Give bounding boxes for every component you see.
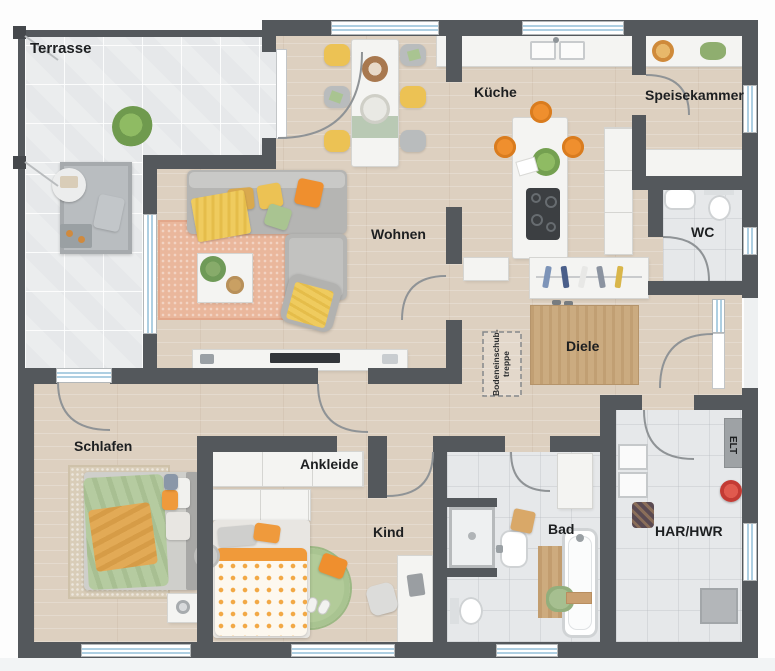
- kitchen-faucet: [553, 37, 559, 43]
- room-label-wohnen: Wohnen: [371, 226, 426, 242]
- dining-chair: [400, 130, 426, 152]
- room-label-speisekammer: Speisekammer: [645, 87, 744, 103]
- wall-har-top-b: [694, 395, 742, 410]
- room-label-kind: Kind: [373, 524, 404, 540]
- cooktop-burner: [545, 196, 557, 208]
- nightstand-lamp: [176, 600, 190, 614]
- wall-ankleide-right: [368, 436, 387, 498]
- window-bedroom: [82, 645, 190, 656]
- room-label-har-hwr: HAR/HWR: [655, 523, 723, 539]
- wall-south-living-c: [368, 368, 462, 384]
- shower-stub-wall: [447, 568, 497, 577]
- terrace-tray: [60, 176, 78, 188]
- shower-drain: [468, 532, 476, 540]
- kitchen-sink: [559, 41, 585, 60]
- wardrobe-row-left: [213, 490, 310, 520]
- room-label-ankleide: Ankleide: [300, 456, 358, 472]
- shower-stub-wall: [447, 498, 497, 507]
- coffee-table-plant: [200, 256, 226, 282]
- wall-kind-right: [433, 436, 447, 642]
- window-kind: [292, 645, 394, 656]
- bad-stool-towel: [510, 508, 536, 534]
- tub-caddy: [566, 592, 592, 604]
- dryer: [618, 472, 648, 498]
- wall-bad-top-a: [447, 436, 505, 452]
- room-label-wc: WC: [691, 224, 714, 240]
- kid-desk: [398, 556, 432, 642]
- window-wc: [744, 228, 756, 254]
- terrace-post: [13, 156, 26, 169]
- bathtub-inner: [568, 536, 592, 630]
- robot-vacuum: [720, 480, 742, 502]
- room-label-diele: Diele: [566, 338, 599, 354]
- sofa-throw-yellow: [191, 190, 252, 243]
- terrace-dining-door-leaf: [277, 50, 286, 138]
- terrace-wall-top: [18, 30, 264, 37]
- wall-terrace-dining-a: [262, 20, 276, 52]
- wall-wc-top: [632, 176, 758, 190]
- window-pantry: [744, 86, 756, 132]
- wall-right-upper: [742, 20, 758, 298]
- cooktop-burner: [531, 193, 541, 203]
- laundry-basket: [632, 502, 654, 528]
- page-bottom-strip: [0, 658, 775, 671]
- hall-shoes: [552, 300, 561, 305]
- bad-cabinet: [558, 454, 592, 508]
- cooktop-burner: [531, 214, 543, 226]
- wall-south-living-a: [18, 368, 58, 384]
- terrace-towel: [60, 224, 92, 248]
- wall-center-upper: [446, 207, 462, 264]
- patio-door-living: [144, 215, 156, 333]
- room-label-bad: Bad: [548, 521, 574, 537]
- entry-door-leaf: [713, 334, 724, 388]
- dining-chair: [400, 86, 426, 108]
- wall-bedroom-right: [197, 436, 213, 642]
- bar-stool: [494, 136, 516, 158]
- coat-rack: [530, 258, 648, 298]
- wall-left: [18, 368, 34, 658]
- wall-kitchen-stub: [446, 36, 462, 82]
- wall-living-top: [143, 155, 276, 169]
- bathtub-faucet: [576, 534, 584, 542]
- table-bouquet: [360, 94, 390, 124]
- wall-south-living-b: [110, 368, 318, 384]
- terrace-door-bedroom: [57, 369, 111, 382]
- sideboard-deco: [382, 354, 398, 364]
- wall-pantry-left-a: [632, 20, 646, 75]
- kid-pillow-gray: [217, 524, 257, 547]
- bed-pillow-orange: [162, 490, 178, 510]
- tv: [270, 353, 340, 363]
- kitchen-tall-cabinets: [605, 128, 632, 254]
- bar-stool: [530, 101, 552, 123]
- washbasin-wc: [664, 188, 696, 210]
- cooktop-burner: [546, 222, 556, 232]
- floor-plan: Terrasse Küche Speisekammer WC Wohnen Di…: [0, 0, 775, 671]
- room-label-elt: ELT: [727, 424, 738, 466]
- wall-center-lower: [446, 320, 462, 370]
- terrace-post: [13, 26, 26, 39]
- bed-pillow-blue: [164, 474, 178, 490]
- window-har: [744, 524, 756, 580]
- bed-throw-orange: [88, 502, 158, 572]
- coffee-table-tray: [226, 276, 244, 294]
- pantry-fruit-bowl: [652, 40, 674, 62]
- wall-wc-bottom: [648, 281, 758, 295]
- wall-right-lower: [742, 388, 758, 658]
- island-plant: [532, 148, 560, 176]
- terrace-wall-left: [18, 30, 25, 370]
- pillow-orange: [294, 178, 325, 209]
- terrace-towel-dot2: [78, 236, 85, 243]
- washbasin-bad: [500, 530, 528, 568]
- toilet-wc-bowl: [708, 195, 731, 221]
- pantry-herbs: [700, 42, 726, 60]
- kid-laptop: [407, 573, 426, 597]
- storage-box: [700, 588, 738, 624]
- coat-item: [560, 266, 569, 289]
- wall-bad-top-b: [550, 436, 602, 452]
- attic-stair-annotation: Bodeneinschub- treppe: [483, 332, 521, 396]
- wall-wc-left-a: [648, 190, 663, 237]
- washer: [618, 444, 648, 470]
- washbasin-tap: [496, 545, 503, 553]
- terrace-plant: [112, 106, 154, 148]
- room-label-terrasse: Terrasse: [30, 40, 91, 57]
- entry-sidelight: [713, 300, 724, 332]
- toilet-bad-bowl: [459, 597, 483, 625]
- hall-lowboard: [464, 258, 508, 280]
- wall-bad-har: [600, 436, 616, 642]
- coat-rod: [536, 276, 642, 278]
- pantry-shelf-bottom: [646, 150, 742, 176]
- wall-pantry-left-b: [632, 115, 646, 178]
- room-label-schlafen: Schlafen: [74, 438, 132, 454]
- window-dining: [332, 22, 438, 34]
- window-bad: [497, 645, 557, 656]
- bed-pillow: [166, 512, 190, 540]
- window-kitchen: [523, 22, 623, 34]
- kid-pillow-orange: [253, 522, 281, 543]
- toilet-bad-tank: [450, 598, 459, 624]
- wall-har-joint: [600, 395, 616, 443]
- dining-chair: [324, 44, 350, 66]
- bar-stool: [562, 136, 584, 158]
- room-label-kueche: Küche: [474, 84, 517, 100]
- sideboard-deco: [200, 354, 214, 364]
- terrace-towel-dot1: [66, 230, 73, 237]
- kid-duvet-fold: [215, 548, 307, 561]
- dining-chair: [324, 130, 350, 152]
- kid-duvet: [215, 548, 307, 636]
- attic-stair-line2: treppe: [502, 332, 512, 396]
- kitchen-sink: [530, 41, 556, 60]
- table-platter: [362, 56, 388, 82]
- wall-har-top-a: [616, 395, 642, 410]
- entry-porch: [744, 298, 758, 388]
- wall-corridor-south: [197, 436, 337, 452]
- wall-terrace-dining-b: [262, 138, 276, 166]
